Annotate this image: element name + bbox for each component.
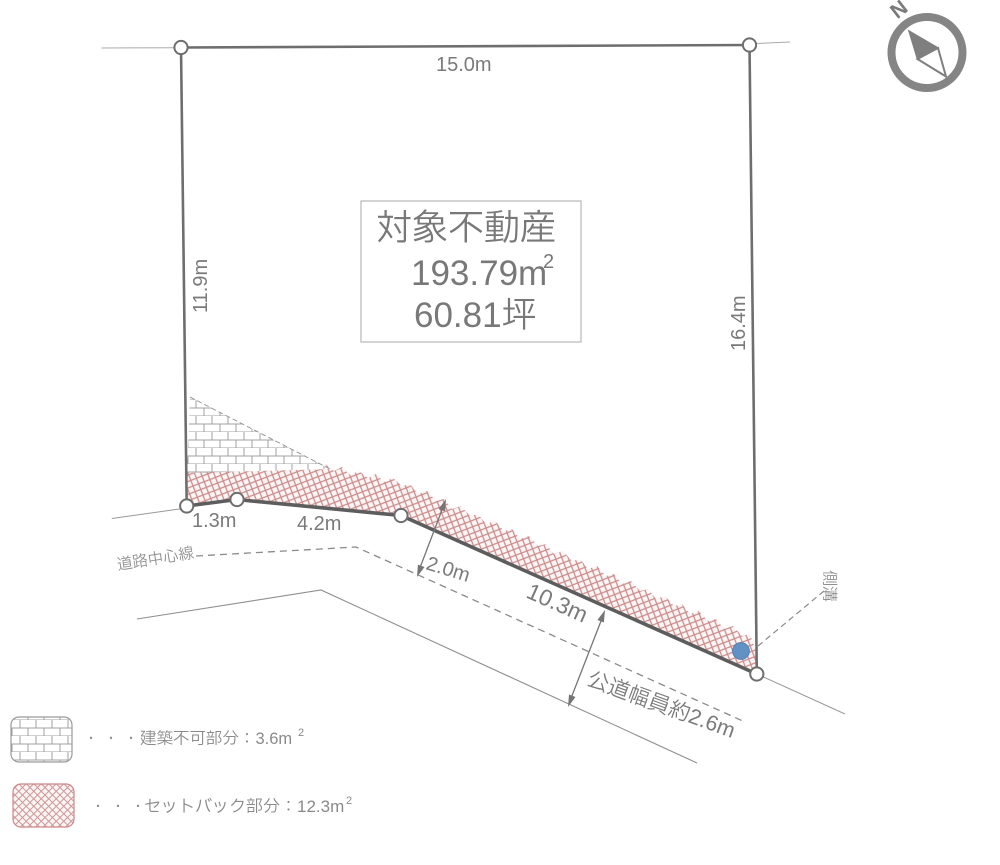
svg-text:側溝: 側溝	[820, 570, 838, 602]
svg-text:11.9m: 11.9m	[190, 259, 212, 313]
svg-text:193.79m: 193.79m	[411, 254, 547, 293]
svg-text:2: 2	[543, 251, 554, 273]
svg-text:2: 2	[298, 727, 304, 739]
svg-text:15.0m: 15.0m	[436, 54, 492, 76]
svg-text:4.2m: 4.2m	[297, 513, 341, 535]
svg-text:16.4m: 16.4m	[728, 295, 750, 351]
svg-text:対象不動産: 対象不動産	[376, 207, 556, 248]
svg-text:2: 2	[346, 795, 352, 807]
svg-text:・・・: ・・・	[83, 731, 143, 748]
svg-text:1.3m: 1.3m	[192, 510, 236, 532]
svg-text:・・・: ・・・	[90, 799, 150, 816]
svg-text:セットバック部分：12.3m: セットバック部分：12.3m	[144, 797, 344, 816]
svg-text:60.81坪: 60.81坪	[414, 296, 537, 335]
svg-text:建築不可部分：3.6m: 建築不可部分：3.6m	[140, 729, 292, 748]
